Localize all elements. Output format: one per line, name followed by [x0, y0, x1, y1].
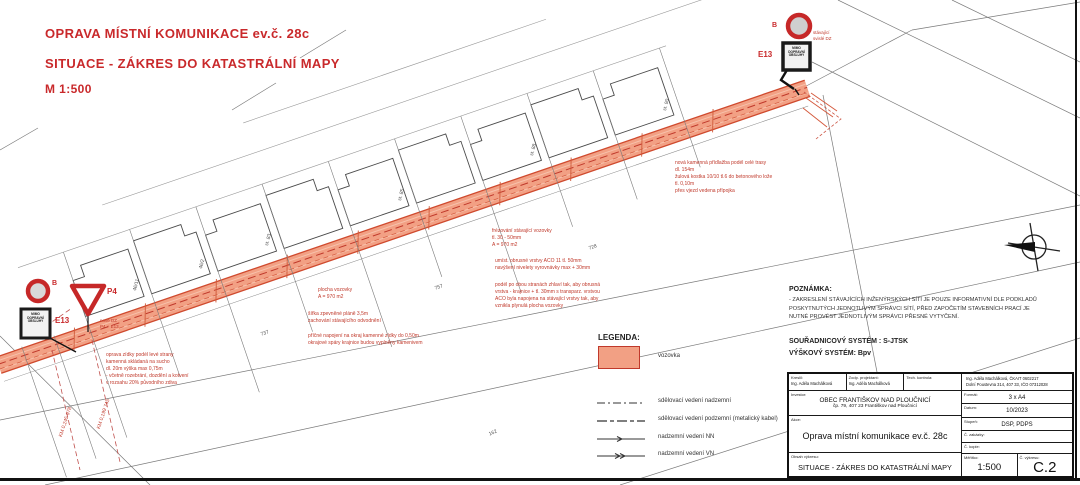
annotation-width: šířka zpevněné pláně 3,5m zachování stáv…: [308, 311, 381, 325]
annotation-wall-repair: oprava zídky podél levé strany kamenná s…: [106, 352, 189, 387]
title-block: Kreslil: Ing. Adéla Machálková Zodp. pro…: [787, 372, 1074, 478]
legend-title: LEGENDA:: [598, 333, 640, 342]
zakazka-label: Č. zakázky:: [964, 432, 985, 437]
sign-b-label: B: [52, 280, 57, 287]
annotation-area: plocha vozovky A = 970 m2: [318, 287, 352, 301]
cislo-vykresu-label: Č. výkresu:: [1020, 455, 1040, 460]
stupen-label: Stupeň:: [964, 419, 978, 424]
coordinate-system-note: SOUŘADNICOVÝ SYSTÉM : S-JTSK: [789, 338, 908, 345]
annotation-milling: frézování stávající vozovky tl. 30 - 50m…: [492, 228, 552, 249]
note-heading: POZNÁMKA:: [789, 286, 832, 293]
no-entry-sign-icon: [28, 281, 48, 301]
height-system-note: VÝŠKOVÝ SYSTÉM: Bpv: [789, 350, 871, 357]
author-block: Ing. Adéla Machálková, ČKAIT 0602217 Dol…: [962, 374, 1072, 388]
legend-line-vn-icon: [597, 452, 645, 460]
datum-label: Datum:: [964, 405, 977, 410]
investor-address: čp. 79, 407 23 Františkov nad Ploučnicí: [789, 404, 961, 409]
note-body: - ZAKRESLENÍ STÁVAJÍCÍCH INŽENÝRSKÝCH SÍ…: [789, 296, 1037, 322]
stupen-value: DSP, PDPS: [962, 418, 1072, 428]
drawing-title-line2: SITUACE - ZÁKRES DO KATASTRÁLNÍ MAPY: [45, 56, 340, 71]
e13-plate-text: MIMO DOPRAVNÍ OBSLUHY: [784, 47, 809, 58]
akce-label: Akce:: [791, 417, 801, 422]
format-value: 3 x A4: [962, 391, 1072, 401]
akce-value: Oprava místní komunikace ev.č. 28c: [789, 416, 961, 441]
annotation-new-sign: nové DZ P4 + E13: [100, 318, 119, 331]
entrance-hatch: [803, 93, 837, 127]
annotation-curb: nová kamenná přídlažba podél celé trasy …: [675, 160, 772, 195]
legend-line-overhead-comms-icon: [597, 399, 645, 407]
sheet-frame-right: [1075, 0, 1077, 481]
annotation-existing-sign: stávající svislé DZ: [813, 30, 832, 43]
e13-plate-text: MIMO DOPRAVNÍ OBSLUHY: [22, 313, 49, 324]
meritko-label: Měřítko:: [964, 455, 978, 460]
legend-label-overhead-comms: sdělovací vedení nadzemní: [658, 398, 731, 404]
kreslil-value: Ing. Adéla Machálková: [791, 381, 832, 386]
legend-road-label: vozovka: [658, 353, 680, 359]
tech-kontrola-label: Tech. kontrola:: [906, 375, 932, 380]
sign-b-label: B: [772, 22, 777, 29]
sign-e13-label: E13: [55, 316, 69, 325]
north-arrow-icon: [1004, 223, 1060, 271]
drawing-title-line1: OPRAVA MÍSTNÍ KOMUNIKACE ev.č. 28c: [45, 26, 310, 41]
legend-label-vn: nadzemní vedení VN: [658, 451, 714, 457]
investor-name: OBEC FRANTIŠKOV NAD PLOUČNICÍ: [789, 391, 961, 404]
no-entry-sign-icon: [788, 15, 810, 37]
kreslil-label: Kreslil:: [791, 375, 803, 380]
zodp-projektant-value: Ing. Adéla Machálková: [849, 381, 890, 386]
road-corridor-group: [0, 0, 849, 485]
legend-label-nn: nadzemní vedení NN: [658, 434, 714, 440]
drawing-scale: M 1:500: [45, 82, 92, 96]
building-outlines: [67, 62, 674, 316]
annotation-leveling: podél po obou stranách zhlaví tak, aby o…: [495, 282, 600, 310]
legend-road-swatch: [598, 346, 640, 369]
datum-value: 10/2023: [962, 404, 1072, 414]
investor-label: Investor:: [791, 392, 806, 397]
kopie-label: Č. kopie:: [964, 444, 980, 449]
legend-line-nn-icon: [597, 435, 645, 443]
sheet-frame-bottom: [0, 478, 1080, 481]
obsah-vykresu-label: Obsah výkresu:: [791, 454, 819, 459]
legend-line-underground-comms-icon: [597, 417, 645, 425]
sign-p4-label: P4: [107, 287, 117, 296]
sign-e13-label: E13: [758, 50, 772, 59]
annotation-wearing-course: umíst. obrusné vrstvy ACO 11 tl. 50mm na…: [495, 258, 590, 272]
legend-label-underground-comms: sdělovací vedení podzemní (metalický kab…: [658, 416, 778, 422]
annotation-edge: příčné napojení na okraj kamenné zídky d…: [308, 333, 423, 347]
zodp-projektant-label: Zodp. projektant:: [849, 375, 879, 380]
drawing-sheet: OPRAVA MÍSTNÍ KOMUNIKACE ev.č. 28c SITUA…: [0, 0, 1080, 485]
format-label: Formát:: [964, 392, 978, 397]
